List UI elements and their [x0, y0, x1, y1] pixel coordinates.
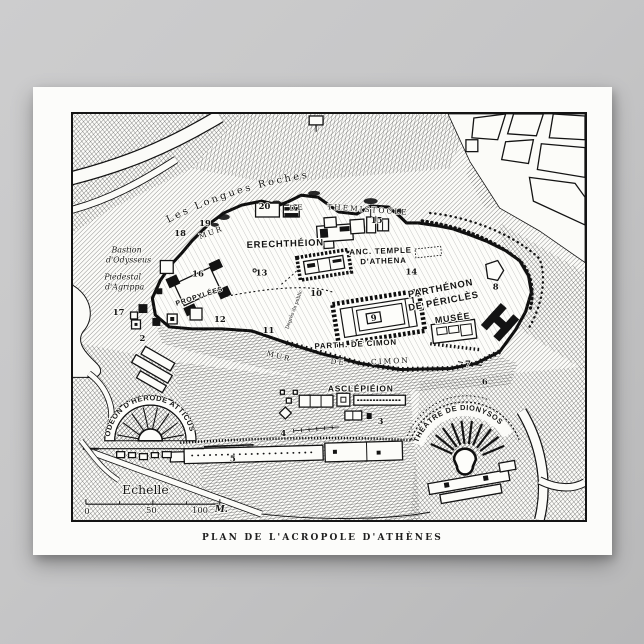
scale-50: 50	[146, 505, 157, 515]
map-frame: 9	[71, 112, 587, 522]
product-background: { "poster": { "caption": "PLAN DE L'ACRO…	[0, 0, 644, 644]
orchestra	[454, 449, 476, 475]
de-sud-label: DE	[330, 357, 346, 368]
agrippa-pedestal	[156, 288, 162, 294]
site-number-20: 20	[259, 201, 271, 211]
site-number-7: 7	[465, 359, 471, 369]
site-number-8: 8	[493, 281, 499, 291]
site-number-16: 16	[192, 268, 204, 278]
de-nord-label: DE	[289, 202, 305, 212]
poster-caption: PLAN DE L'ACROPOLE D'ATHÈNES	[33, 533, 612, 543]
site-number-6: 6	[482, 376, 488, 386]
poster: 9	[33, 87, 612, 555]
bastion-label-2: d'Odysseus	[106, 256, 151, 265]
site-number-4: 4	[280, 428, 286, 438]
site-number-19: 19	[199, 218, 211, 228]
scale-0: 0	[84, 506, 89, 516]
beule-gate	[138, 304, 147, 313]
site-number-12: 12	[214, 314, 226, 324]
asclepieion-label: ASCLÉPIÉION	[328, 382, 394, 393]
acropolis-map: 9	[73, 114, 585, 520]
piedestal-label-2: d'Agrippa	[105, 282, 144, 291]
scale-100: 100	[192, 505, 208, 515]
site-number-3: 3	[378, 416, 384, 426]
site-number-11: 11	[263, 325, 275, 335]
site-number-14: 14	[405, 266, 417, 276]
bastion-label-1: Bastion	[110, 246, 141, 255]
site-number-10: 10	[310, 288, 322, 298]
piedestal-label-1: Piédestal	[103, 272, 141, 281]
scale-title: Echelle	[122, 482, 169, 497]
site-number-15: 15	[371, 215, 383, 225]
scale-unit: M.	[214, 505, 228, 515]
site-number-13: 13	[256, 267, 268, 277]
anc-temple-label-2: D'ATHENA	[360, 256, 407, 267]
site-number-2: 2	[140, 333, 146, 343]
site-number-18: 18	[174, 228, 186, 238]
site-number-17: 17	[113, 307, 125, 317]
site-number-5: 5	[230, 454, 236, 464]
